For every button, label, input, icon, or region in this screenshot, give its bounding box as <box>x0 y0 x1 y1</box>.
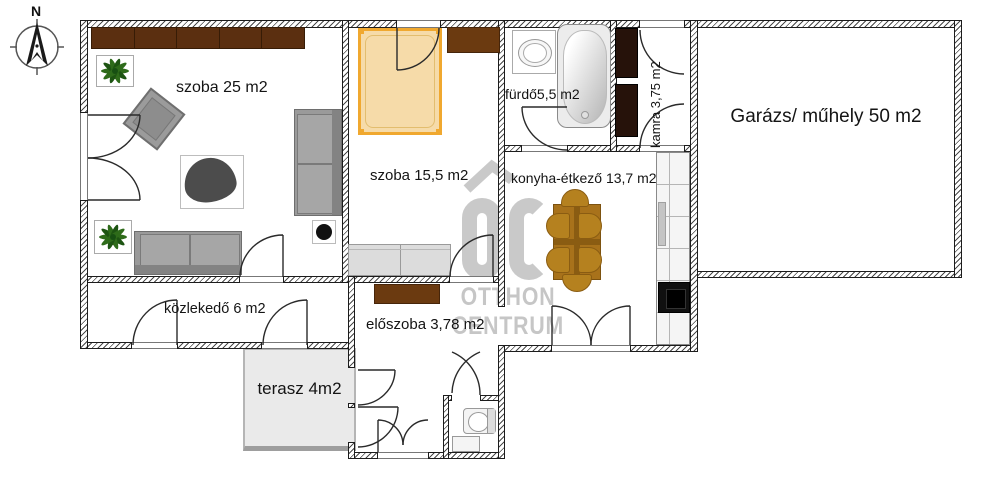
door-opening <box>522 145 567 152</box>
wall-segment <box>177 342 262 349</box>
door-opening <box>640 20 684 28</box>
wall-segment <box>690 271 962 278</box>
room-label-szoba25: szoba 25 m2 <box>176 79 268 97</box>
bathtub <box>557 24 611 128</box>
plant <box>94 220 132 254</box>
sofa <box>134 231 242 275</box>
wall-segment <box>80 276 240 283</box>
washbasin <box>512 30 556 74</box>
wall-segment <box>348 403 355 408</box>
wall-segment <box>690 20 698 352</box>
door-opening <box>397 20 440 28</box>
pantry-cabinet <box>615 84 638 137</box>
room-label-kamra: kamra 3,75 m2 <box>648 61 663 148</box>
plant <box>96 55 134 87</box>
door-opening <box>240 276 283 283</box>
terrace-floor <box>243 348 356 451</box>
room-label-konyha: konyha-étkező 13,7 m2 <box>511 170 657 186</box>
wall-segment <box>954 20 962 278</box>
door-arc <box>452 352 480 395</box>
door-arc <box>240 235 283 277</box>
watermark-letter-o <box>462 198 502 280</box>
pantry-cabinet <box>615 28 638 78</box>
dining-chair <box>546 247 570 273</box>
wall-segment <box>498 345 505 459</box>
door-arc <box>358 407 398 447</box>
side-table <box>312 220 336 244</box>
door-opening <box>378 452 428 459</box>
dining-chair <box>546 213 570 239</box>
wall-segment <box>630 345 698 352</box>
low-cabinet <box>348 244 451 276</box>
kitchen-sink <box>658 202 666 246</box>
wall-segment <box>348 276 355 368</box>
wall-segment <box>80 20 88 113</box>
wall-segment <box>498 20 505 307</box>
wall-segment <box>348 442 355 459</box>
door-arc <box>358 370 395 405</box>
wall-segment <box>567 145 640 152</box>
small-sink <box>452 436 480 452</box>
door-opening <box>450 276 493 283</box>
door-arc <box>88 158 140 200</box>
wall-segment <box>498 345 552 352</box>
door-arc <box>263 300 307 345</box>
wall-segment <box>684 20 962 28</box>
sofa <box>294 109 342 216</box>
wall-segment <box>80 200 88 349</box>
room-label-garazs: Garázs/ műhely 50 m2 <box>690 106 962 128</box>
coffee-table <box>180 155 244 209</box>
floor-plan: OTTHON CENTRUM <box>0 0 1005 500</box>
room-label-furdo: fürdő5,5 m2 <box>505 86 580 102</box>
door-opening <box>132 342 177 349</box>
stove <box>658 282 690 313</box>
compass-north-label: N <box>31 3 41 19</box>
hall-cabinet <box>374 284 440 304</box>
cabinet <box>447 27 500 53</box>
watermark-line1: OTTHON <box>440 283 576 312</box>
room-label-kozlekedo: közlekedő 6 m2 <box>164 301 266 317</box>
door-arc <box>403 420 428 445</box>
plant-icon <box>97 56 133 86</box>
room-label-terasz: terasz 4m2 <box>243 379 356 399</box>
wardrobe <box>91 27 305 49</box>
door-opening <box>262 342 307 349</box>
toilet <box>463 408 496 434</box>
compass-rose: N <box>10 0 70 86</box>
door-arc <box>378 420 403 452</box>
watermark-letter-c <box>509 198 549 280</box>
wall-segment <box>428 452 505 459</box>
wall-segment <box>283 276 450 283</box>
door-opening <box>80 113 88 200</box>
kitchen-counter <box>656 152 690 345</box>
door-opening <box>552 345 630 352</box>
bed <box>358 28 442 135</box>
plant-icon <box>95 221 131 253</box>
room-label-eloszoba: előszoba 3,78 m2 <box>366 316 484 333</box>
room-label-szoba155: szoba 15,5 m2 <box>370 167 468 184</box>
wall-segment <box>443 395 449 459</box>
